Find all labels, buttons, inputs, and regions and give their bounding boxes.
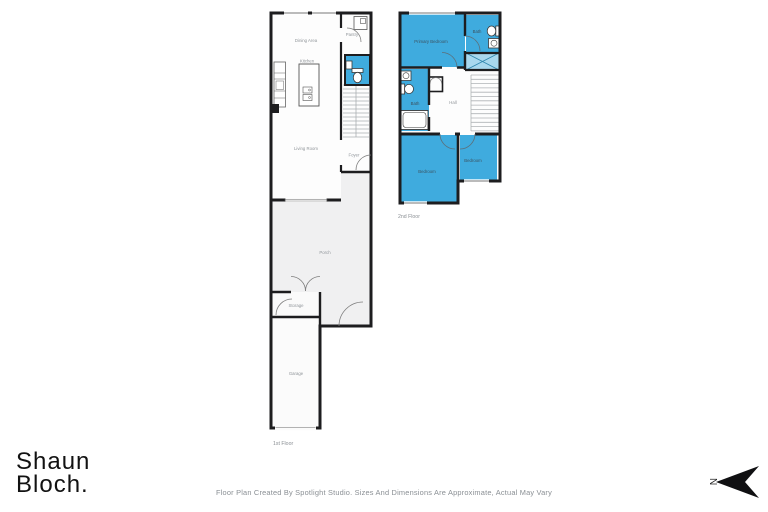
first-floor-plan: Dining Area Kitchen Pantry Living Room F…: [255, 5, 380, 450]
bedroom-left-label: Bedroom: [418, 169, 436, 174]
garage-label: Garage: [289, 371, 304, 376]
disclaimer-text: Floor Plan Created By Spotlight Studio. …: [0, 488, 768, 497]
logo-line-1: Shaun: [16, 450, 90, 473]
hall-label: Hall: [449, 100, 456, 105]
north-arrow-icon: [716, 466, 759, 498]
north-arrow: N: [706, 464, 762, 500]
bath-lower-label: Bath: [411, 101, 420, 106]
north-label: N: [707, 478, 718, 485]
pantry-label: Pantry: [346, 32, 359, 37]
sliding-door: [285, 198, 327, 201]
first-floor-label: 1st Floor: [273, 441, 293, 447]
garage-door: [275, 426, 316, 430]
kitchen-island: [299, 64, 319, 106]
second-floor-plan: Primary Bedroom Bath Bath Hall Bedroom B…: [393, 5, 508, 230]
kitchen-counter: [274, 62, 286, 107]
bedroom-right-label: Bedroom: [464, 158, 482, 163]
porch-label: Porch: [319, 250, 331, 255]
floorplan-page: Dining Area Kitchen Pantry Living Room F…: [0, 0, 768, 512]
living-room-label: Living Room: [294, 146, 318, 151]
primary-bedroom-label: Primary Bedroom: [414, 39, 448, 44]
dining-area-label: Dining Area: [295, 38, 318, 43]
second-floor-label: 2nd Floor: [398, 214, 420, 220]
foyer-label: Foyer: [349, 153, 361, 158]
kitchen-label: Kitchen: [300, 59, 315, 64]
bath-upper-label: Bath: [473, 29, 482, 34]
storage-label: Storage: [288, 303, 304, 308]
linen-closet: [429, 77, 443, 92]
pantry-appliance: [354, 17, 367, 30]
